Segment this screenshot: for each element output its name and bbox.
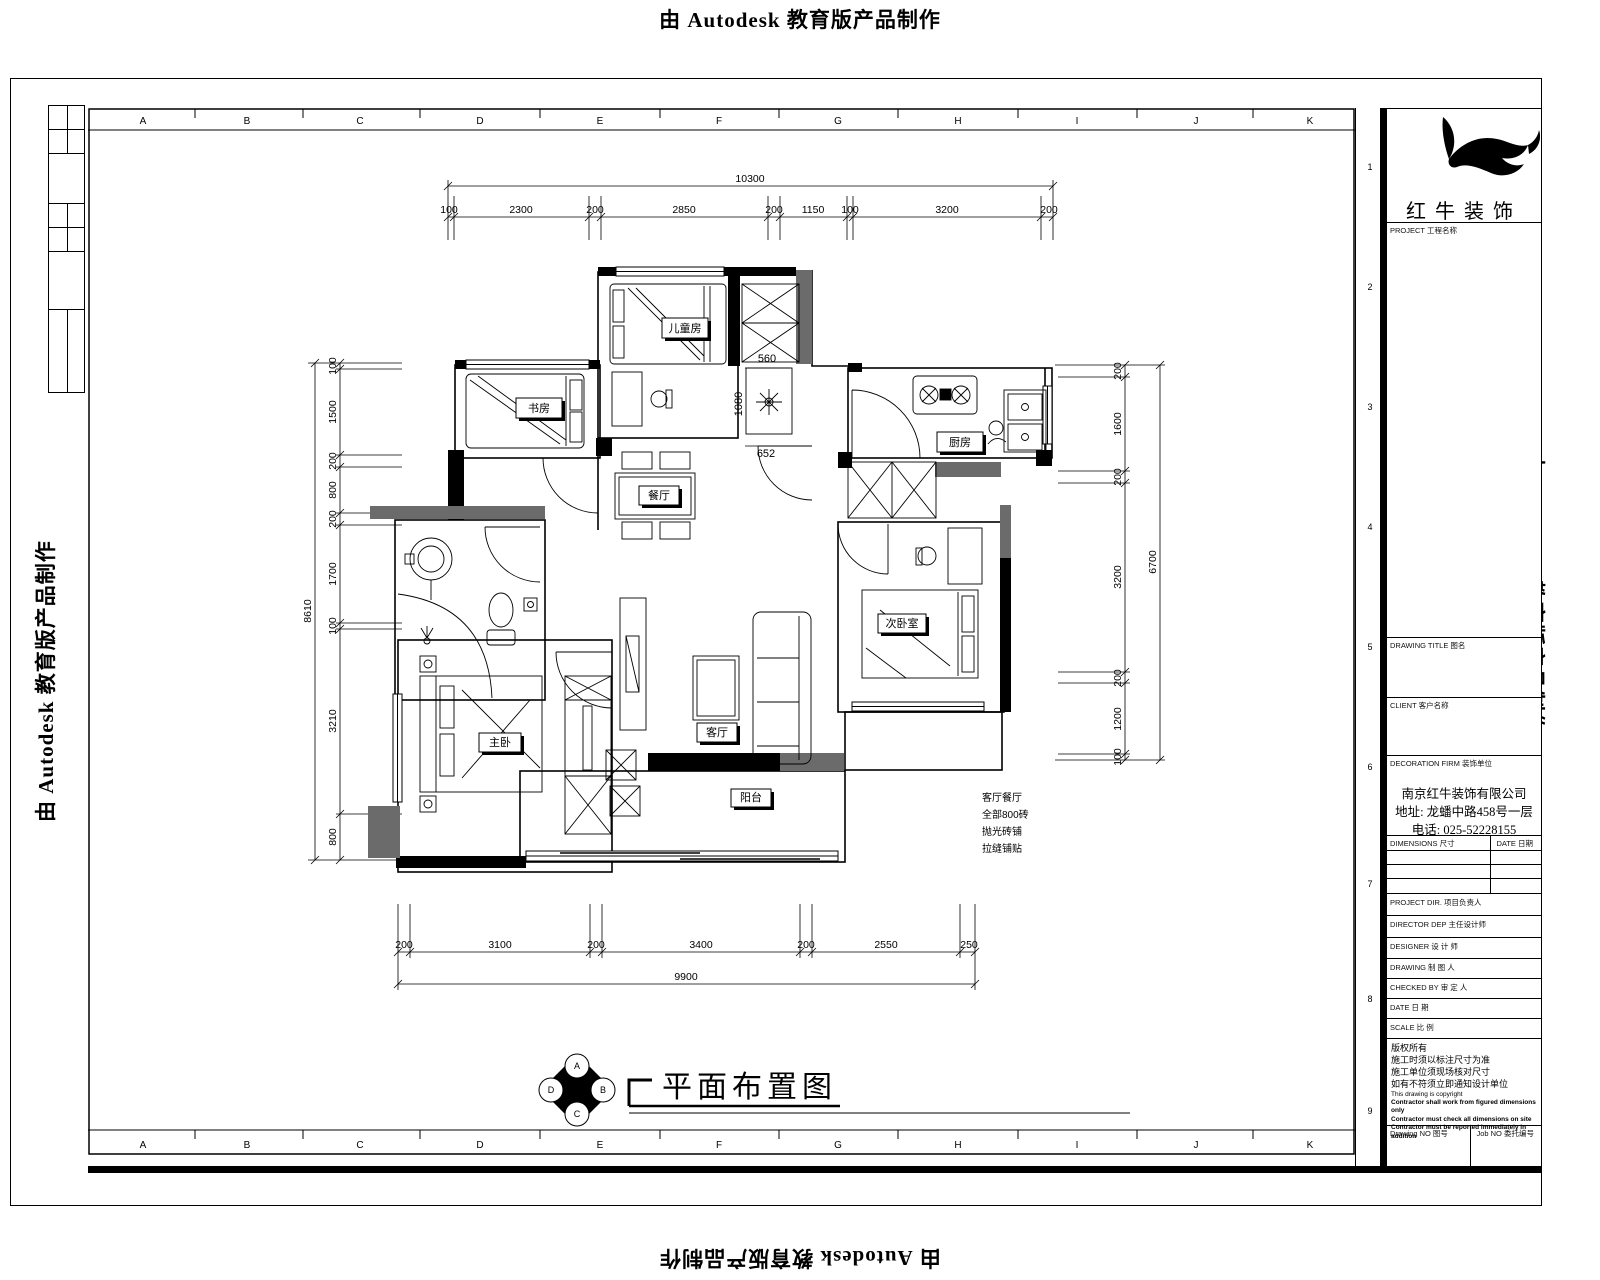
svg-text:200: 200 bbox=[1112, 669, 1124, 687]
field-row: DESIGNER 设 计 师 bbox=[1387, 938, 1541, 959]
empty-row bbox=[1387, 851, 1541, 865]
room-label-dining: 餐厅 bbox=[639, 486, 682, 508]
grid-row-label: 1 bbox=[1362, 162, 1378, 172]
svg-text:全部800砖: 全部800砖 bbox=[982, 808, 1029, 821]
finish-notes: 客厅餐厅 全部800砖 抛光砖铺 拉缝铺贴 bbox=[982, 791, 1029, 855]
title-block: 红牛装饰 PROJECT 工程名称 DRAWING TITLE 图名 CLIEN… bbox=[1387, 108, 1542, 1166]
entry-closet bbox=[742, 284, 799, 362]
legend-cell bbox=[49, 106, 84, 130]
room-label-living: 客厅 bbox=[697, 723, 740, 745]
field-row: PROJECT DIR. 项目负责人 bbox=[1387, 894, 1541, 916]
tv-console bbox=[620, 598, 646, 730]
svg-text:8610: 8610 bbox=[302, 599, 314, 623]
inline-dimensions: 560 1080 652 bbox=[733, 353, 776, 460]
room-label-master: 主卧 bbox=[479, 733, 524, 755]
svg-text:2850: 2850 bbox=[672, 204, 696, 216]
field-row: CHECKED BY 审 定 人 bbox=[1387, 979, 1541, 999]
legend-cell bbox=[49, 130, 84, 154]
svg-text:3210: 3210 bbox=[327, 709, 339, 733]
children-desk bbox=[612, 372, 672, 426]
svg-text:H: H bbox=[954, 116, 961, 127]
second-desk bbox=[916, 528, 982, 584]
svg-text:200: 200 bbox=[797, 939, 815, 951]
svg-text:儿童房: 儿童房 bbox=[669, 321, 702, 335]
svg-text:E: E bbox=[597, 116, 604, 127]
room-label-second: 次卧室 bbox=[878, 614, 929, 636]
floor-plan-canvas: AB CD EF GH IJ K AB CD EF GH IJ K 100 23… bbox=[88, 108, 1355, 1155]
firm-section: DECORATION FIRM 装饰单位 南京红牛装饰有限公司 地址: 龙蟠中路… bbox=[1387, 756, 1541, 836]
svg-text:A: A bbox=[574, 1061, 580, 1071]
svg-text:1500: 1500 bbox=[327, 400, 339, 424]
svg-text:抛光砖铺: 抛光砖铺 bbox=[982, 825, 1022, 838]
svg-text:K: K bbox=[1307, 116, 1314, 127]
svg-text:拉缝铺贴: 拉缝铺贴 bbox=[982, 842, 1022, 855]
field-row: DIRECTOR DEP 主任设计师 bbox=[1387, 916, 1541, 938]
room-label-children: 儿童房 bbox=[662, 318, 711, 341]
svg-text:9900: 9900 bbox=[674, 971, 698, 983]
inner-frame bbox=[88, 109, 1355, 1154]
svg-text:F: F bbox=[716, 1140, 722, 1151]
svg-text:H: H bbox=[954, 1140, 961, 1151]
svg-text:G: G bbox=[834, 116, 842, 127]
svg-text:D: D bbox=[476, 116, 483, 127]
number-section: Drawing NO 图号 Job NO 委托编号 bbox=[1387, 1126, 1541, 1167]
bottom-thick-border bbox=[88, 1166, 1542, 1173]
svg-text:客厅餐厅: 客厅餐厅 bbox=[982, 791, 1022, 804]
empty-row bbox=[1387, 865, 1541, 879]
furniture bbox=[398, 284, 1046, 859]
svg-text:250: 250 bbox=[960, 939, 978, 951]
svg-text:100: 100 bbox=[841, 204, 859, 216]
bathroom-sink bbox=[405, 538, 452, 600]
svg-text:B: B bbox=[244, 1140, 251, 1151]
svg-text:200: 200 bbox=[587, 939, 605, 951]
empty-row bbox=[1387, 879, 1541, 894]
sofa bbox=[753, 612, 811, 764]
grid-row-label: 7 bbox=[1362, 879, 1378, 889]
svg-text:200: 200 bbox=[1112, 468, 1124, 486]
svg-text:3200: 3200 bbox=[935, 204, 959, 216]
svg-text:100: 100 bbox=[327, 357, 339, 375]
svg-text:3200: 3200 bbox=[1112, 565, 1124, 589]
svg-text:100: 100 bbox=[327, 617, 339, 635]
legend-cell bbox=[49, 204, 84, 228]
legend-cell bbox=[49, 252, 84, 310]
svg-text:200: 200 bbox=[765, 204, 783, 216]
grid-row-label: 4 bbox=[1362, 522, 1378, 532]
grid-row-label: 2 bbox=[1362, 282, 1378, 292]
svg-text:F: F bbox=[716, 116, 722, 127]
svg-text:A: A bbox=[140, 116, 147, 127]
svg-text:1200: 1200 bbox=[1112, 707, 1124, 731]
svg-text:E: E bbox=[597, 1140, 604, 1151]
grid-row-label: 9 bbox=[1362, 1106, 1378, 1116]
drawing-no-label: Drawing NO 图号 bbox=[1387, 1126, 1469, 1141]
kitchen-sink bbox=[988, 390, 1046, 452]
room-label-balcony: 阳台 bbox=[731, 789, 774, 810]
svg-text:书房: 书房 bbox=[528, 402, 550, 415]
svg-text:2300: 2300 bbox=[509, 204, 533, 216]
grid-row-label: 5 bbox=[1362, 642, 1378, 652]
toilet bbox=[487, 593, 537, 645]
company-address: 地址: 龙蟠中路458号一层 bbox=[1387, 803, 1541, 821]
svg-text:G: G bbox=[834, 1140, 842, 1151]
coffee-table bbox=[693, 656, 739, 720]
svg-text:800: 800 bbox=[327, 481, 339, 499]
cad-sheet: { "edge": { "autodesk_notice": "由 Autode… bbox=[0, 0, 1600, 1280]
svg-text:200: 200 bbox=[327, 452, 339, 470]
svg-text:1700: 1700 bbox=[327, 562, 339, 586]
svg-text:560: 560 bbox=[758, 353, 776, 365]
grid-row-label: 3 bbox=[1362, 402, 1378, 412]
master-wardrobe bbox=[565, 676, 611, 834]
svg-text:3100: 3100 bbox=[488, 939, 512, 951]
solid-walls bbox=[396, 267, 1052, 868]
date-col-label: DATE 日期 bbox=[1493, 836, 1536, 851]
svg-text:C: C bbox=[356, 1140, 363, 1151]
legend-cell bbox=[49, 310, 84, 392]
grid-row-label: 8 bbox=[1362, 994, 1378, 1004]
svg-text:1150: 1150 bbox=[802, 204, 825, 216]
shower bbox=[398, 594, 492, 698]
svg-text:J: J bbox=[1194, 1140, 1199, 1151]
svg-text:200: 200 bbox=[395, 939, 413, 951]
legend-cell bbox=[49, 154, 84, 204]
svg-text:200: 200 bbox=[327, 510, 339, 528]
svg-text:D: D bbox=[476, 1140, 483, 1151]
room-label-study: 书房 bbox=[516, 398, 565, 421]
svg-text:1080: 1080 bbox=[733, 392, 745, 416]
client-section: CLIENT 客户名称 bbox=[1387, 698, 1541, 756]
stove bbox=[913, 376, 977, 414]
svg-text:I: I bbox=[1076, 116, 1079, 127]
job-no-label: Job NO 委托编号 bbox=[1473, 1126, 1537, 1141]
svg-text:K: K bbox=[1307, 1140, 1314, 1151]
svg-text:800: 800 bbox=[327, 828, 339, 846]
svg-text:餐厅: 餐厅 bbox=[648, 488, 670, 502]
svg-text:652: 652 bbox=[757, 448, 775, 460]
svg-text:B: B bbox=[600, 1085, 606, 1095]
svg-text:I: I bbox=[1076, 1140, 1079, 1151]
svg-text:B: B bbox=[244, 116, 251, 127]
field-row: SCALE 比 例 bbox=[1387, 1019, 1541, 1039]
legend-strip bbox=[48, 105, 85, 393]
svg-text:100: 100 bbox=[1112, 748, 1124, 766]
svg-text:阳台: 阳台 bbox=[740, 790, 762, 804]
field-row: DATE 日 期 bbox=[1387, 999, 1541, 1019]
svg-text:200: 200 bbox=[1040, 204, 1058, 216]
svg-text:主卧: 主卧 bbox=[489, 736, 511, 749]
notes-section: 版权所有 施工时须以标注尺寸为准 施工单位须现场核对尺寸 如有不符须立即通知设计… bbox=[1387, 1039, 1541, 1126]
room-label-kitchen: 厨房 bbox=[937, 432, 986, 455]
svg-text:D: D bbox=[548, 1085, 555, 1095]
svg-text:1600: 1600 bbox=[1112, 412, 1124, 436]
svg-text:次卧室: 次卧室 bbox=[886, 616, 919, 630]
hall-closet bbox=[848, 462, 936, 518]
svg-text:客厅: 客厅 bbox=[706, 725, 728, 739]
grid-row-label: 6 bbox=[1362, 762, 1378, 772]
drawing-title-label: DRAWING TITLE 图名 bbox=[1387, 638, 1541, 653]
svg-text:3400: 3400 bbox=[689, 939, 713, 951]
autodesk-stamp-bottom: 由 Autodesk 教育版产品制作 bbox=[0, 1244, 1600, 1274]
entry-cabinet bbox=[746, 368, 792, 434]
firm-label: DECORATION FIRM 装饰单位 bbox=[1387, 756, 1541, 771]
field-row: DRAWING 制 图 人 bbox=[1387, 959, 1541, 979]
svg-text:200: 200 bbox=[1112, 362, 1124, 380]
rednull-bull-logo-icon bbox=[1387, 109, 1540, 193]
dimensions-label: DIMENSIONS 尺寸 bbox=[1387, 836, 1489, 851]
svg-text:J: J bbox=[1194, 116, 1199, 127]
project-section: PROJECT 工程名称 bbox=[1387, 223, 1541, 638]
legend-cell bbox=[49, 228, 84, 252]
dimensions-header-row: DIMENSIONS 尺寸 DATE 日期 bbox=[1387, 836, 1541, 851]
svg-text:10300: 10300 bbox=[735, 173, 764, 185]
company-name: 南京红牛装饰有限公司 bbox=[1387, 785, 1541, 803]
drawing-title-section: DRAWING TITLE 图名 bbox=[1387, 638, 1541, 698]
drawing-title-group: A B C D 平面布置图 bbox=[539, 1054, 1130, 1126]
autodesk-stamp-top: 由 Autodesk 教育版产品制作 bbox=[0, 4, 1600, 34]
logo-section: 红牛装饰 bbox=[1387, 109, 1541, 223]
titleblock-divider-bar bbox=[1380, 108, 1387, 1166]
svg-text:100: 100 bbox=[440, 204, 458, 216]
svg-text:6700: 6700 bbox=[1147, 550, 1159, 574]
client-label: CLIENT 客户名称 bbox=[1387, 698, 1541, 713]
brand-name: 红牛装饰 bbox=[1387, 195, 1541, 224]
plan-title: 平面布置图 bbox=[662, 1071, 837, 1104]
windows bbox=[393, 267, 1052, 861]
svg-text:C: C bbox=[356, 116, 363, 127]
svg-text:A: A bbox=[140, 1140, 147, 1151]
svg-text:厨房: 厨房 bbox=[949, 436, 971, 449]
svg-text:2550: 2550 bbox=[874, 939, 898, 951]
project-label: PROJECT 工程名称 bbox=[1387, 223, 1541, 238]
svg-text:C: C bbox=[574, 1109, 581, 1119]
inner-right-line bbox=[1355, 108, 1356, 1166]
svg-text:200: 200 bbox=[586, 204, 604, 216]
